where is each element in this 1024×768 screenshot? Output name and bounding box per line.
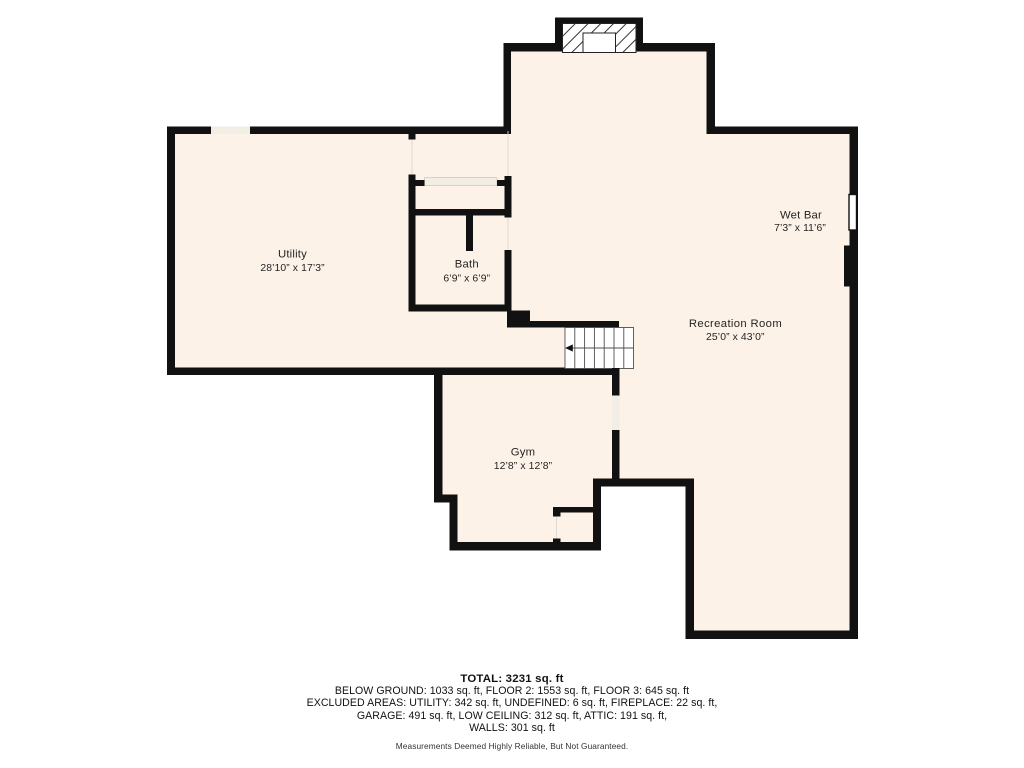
svg-text:Utility: Utility [278, 249, 307, 261]
svg-text:Wet Bar: Wet Bar [780, 209, 822, 221]
svg-text:Gym: Gym [511, 447, 535, 459]
svg-text:6’9” x 6’9”: 6’9” x 6’9” [443, 273, 490, 284]
svg-text:Bath: Bath [455, 259, 479, 271]
svg-text:28’10” x 17’3”: 28’10” x 17’3” [260, 263, 325, 274]
svg-text:25’0” x 43’0”: 25’0” x 43’0” [706, 332, 765, 343]
svg-text:Recreation Room: Recreation Room [689, 318, 782, 330]
svg-text:12’8” x 12’8”: 12’8” x 12’8” [494, 461, 553, 472]
svg-text:7’3” x 11’6”: 7’3” x 11’6” [774, 223, 826, 234]
